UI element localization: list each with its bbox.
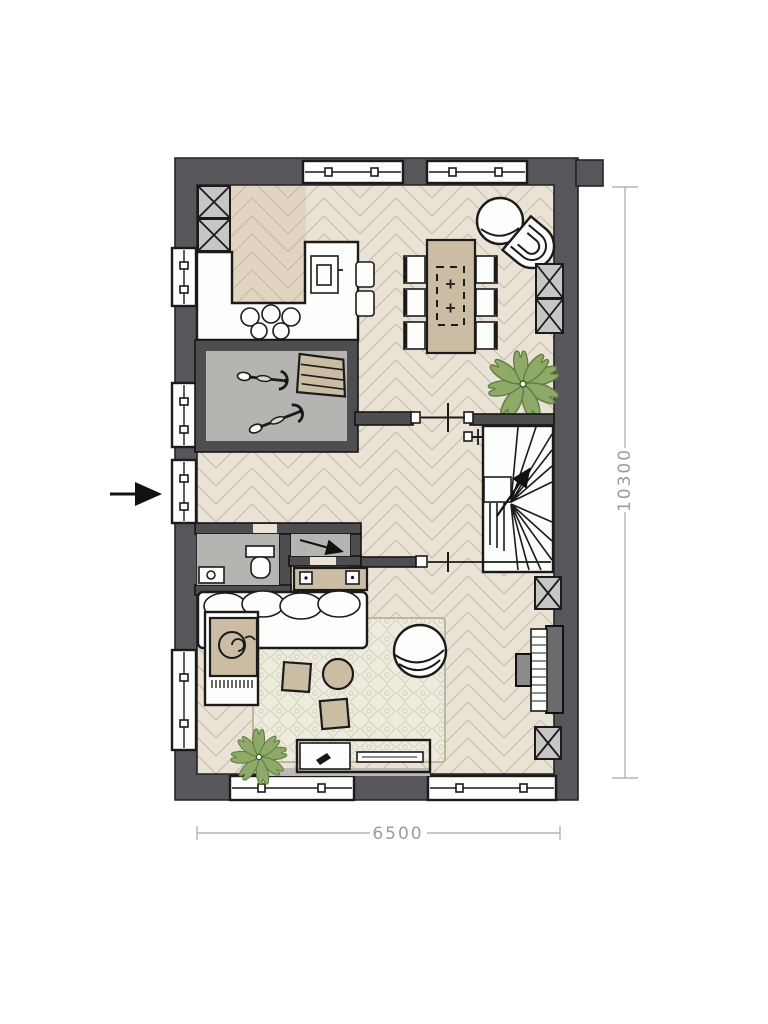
sink: [311, 256, 343, 293]
window-left-middle: [172, 383, 196, 447]
window-top-left: [303, 161, 403, 183]
kitchen-floor-tint: [230, 185, 306, 304]
window-top-right: [427, 161, 527, 183]
storage-room: [195, 340, 358, 452]
winder-staircase: [483, 426, 553, 572]
floor-plan-page: 10300 6500: [0, 0, 768, 1024]
dimension-width-label: 6500: [372, 824, 423, 844]
window-bottom-left: [230, 776, 354, 800]
dining-chairs-right: [476, 256, 497, 349]
under-stairs-cupboard: [289, 534, 361, 566]
window-left-lower: [172, 650, 196, 750]
washbasin: [199, 567, 224, 583]
dining-chairs-left: [404, 256, 425, 349]
window-left-upper: [172, 248, 196, 306]
piano-bench: [516, 654, 531, 686]
floor-plan-drawing: 10300 6500: [0, 0, 768, 1024]
dining-table: [427, 240, 475, 353]
entry-door: [172, 460, 196, 523]
armchair: [394, 625, 446, 677]
dimension-width: 6500: [197, 824, 560, 844]
coffee-table-round: [323, 659, 353, 689]
chaise-longue: [205, 612, 258, 705]
coffee-table-square-1: [282, 662, 311, 692]
dimension-height: 10300: [612, 187, 638, 778]
tall-cabinet-living-upper: [535, 577, 561, 609]
dimension-height-label: 10300: [615, 448, 635, 512]
tall-cabinet-living-lower: [535, 727, 561, 759]
stepladder: [293, 352, 351, 400]
tall-cabinet-dining: [536, 264, 563, 333]
throw-blanket: [210, 618, 257, 676]
sideboard: [294, 568, 367, 590]
window-bottom-right: [428, 776, 556, 800]
coffee-table-square-2: [320, 699, 349, 729]
exterior-wall-nib: [576, 160, 603, 186]
tall-cabinet-kitchen: [198, 186, 230, 251]
